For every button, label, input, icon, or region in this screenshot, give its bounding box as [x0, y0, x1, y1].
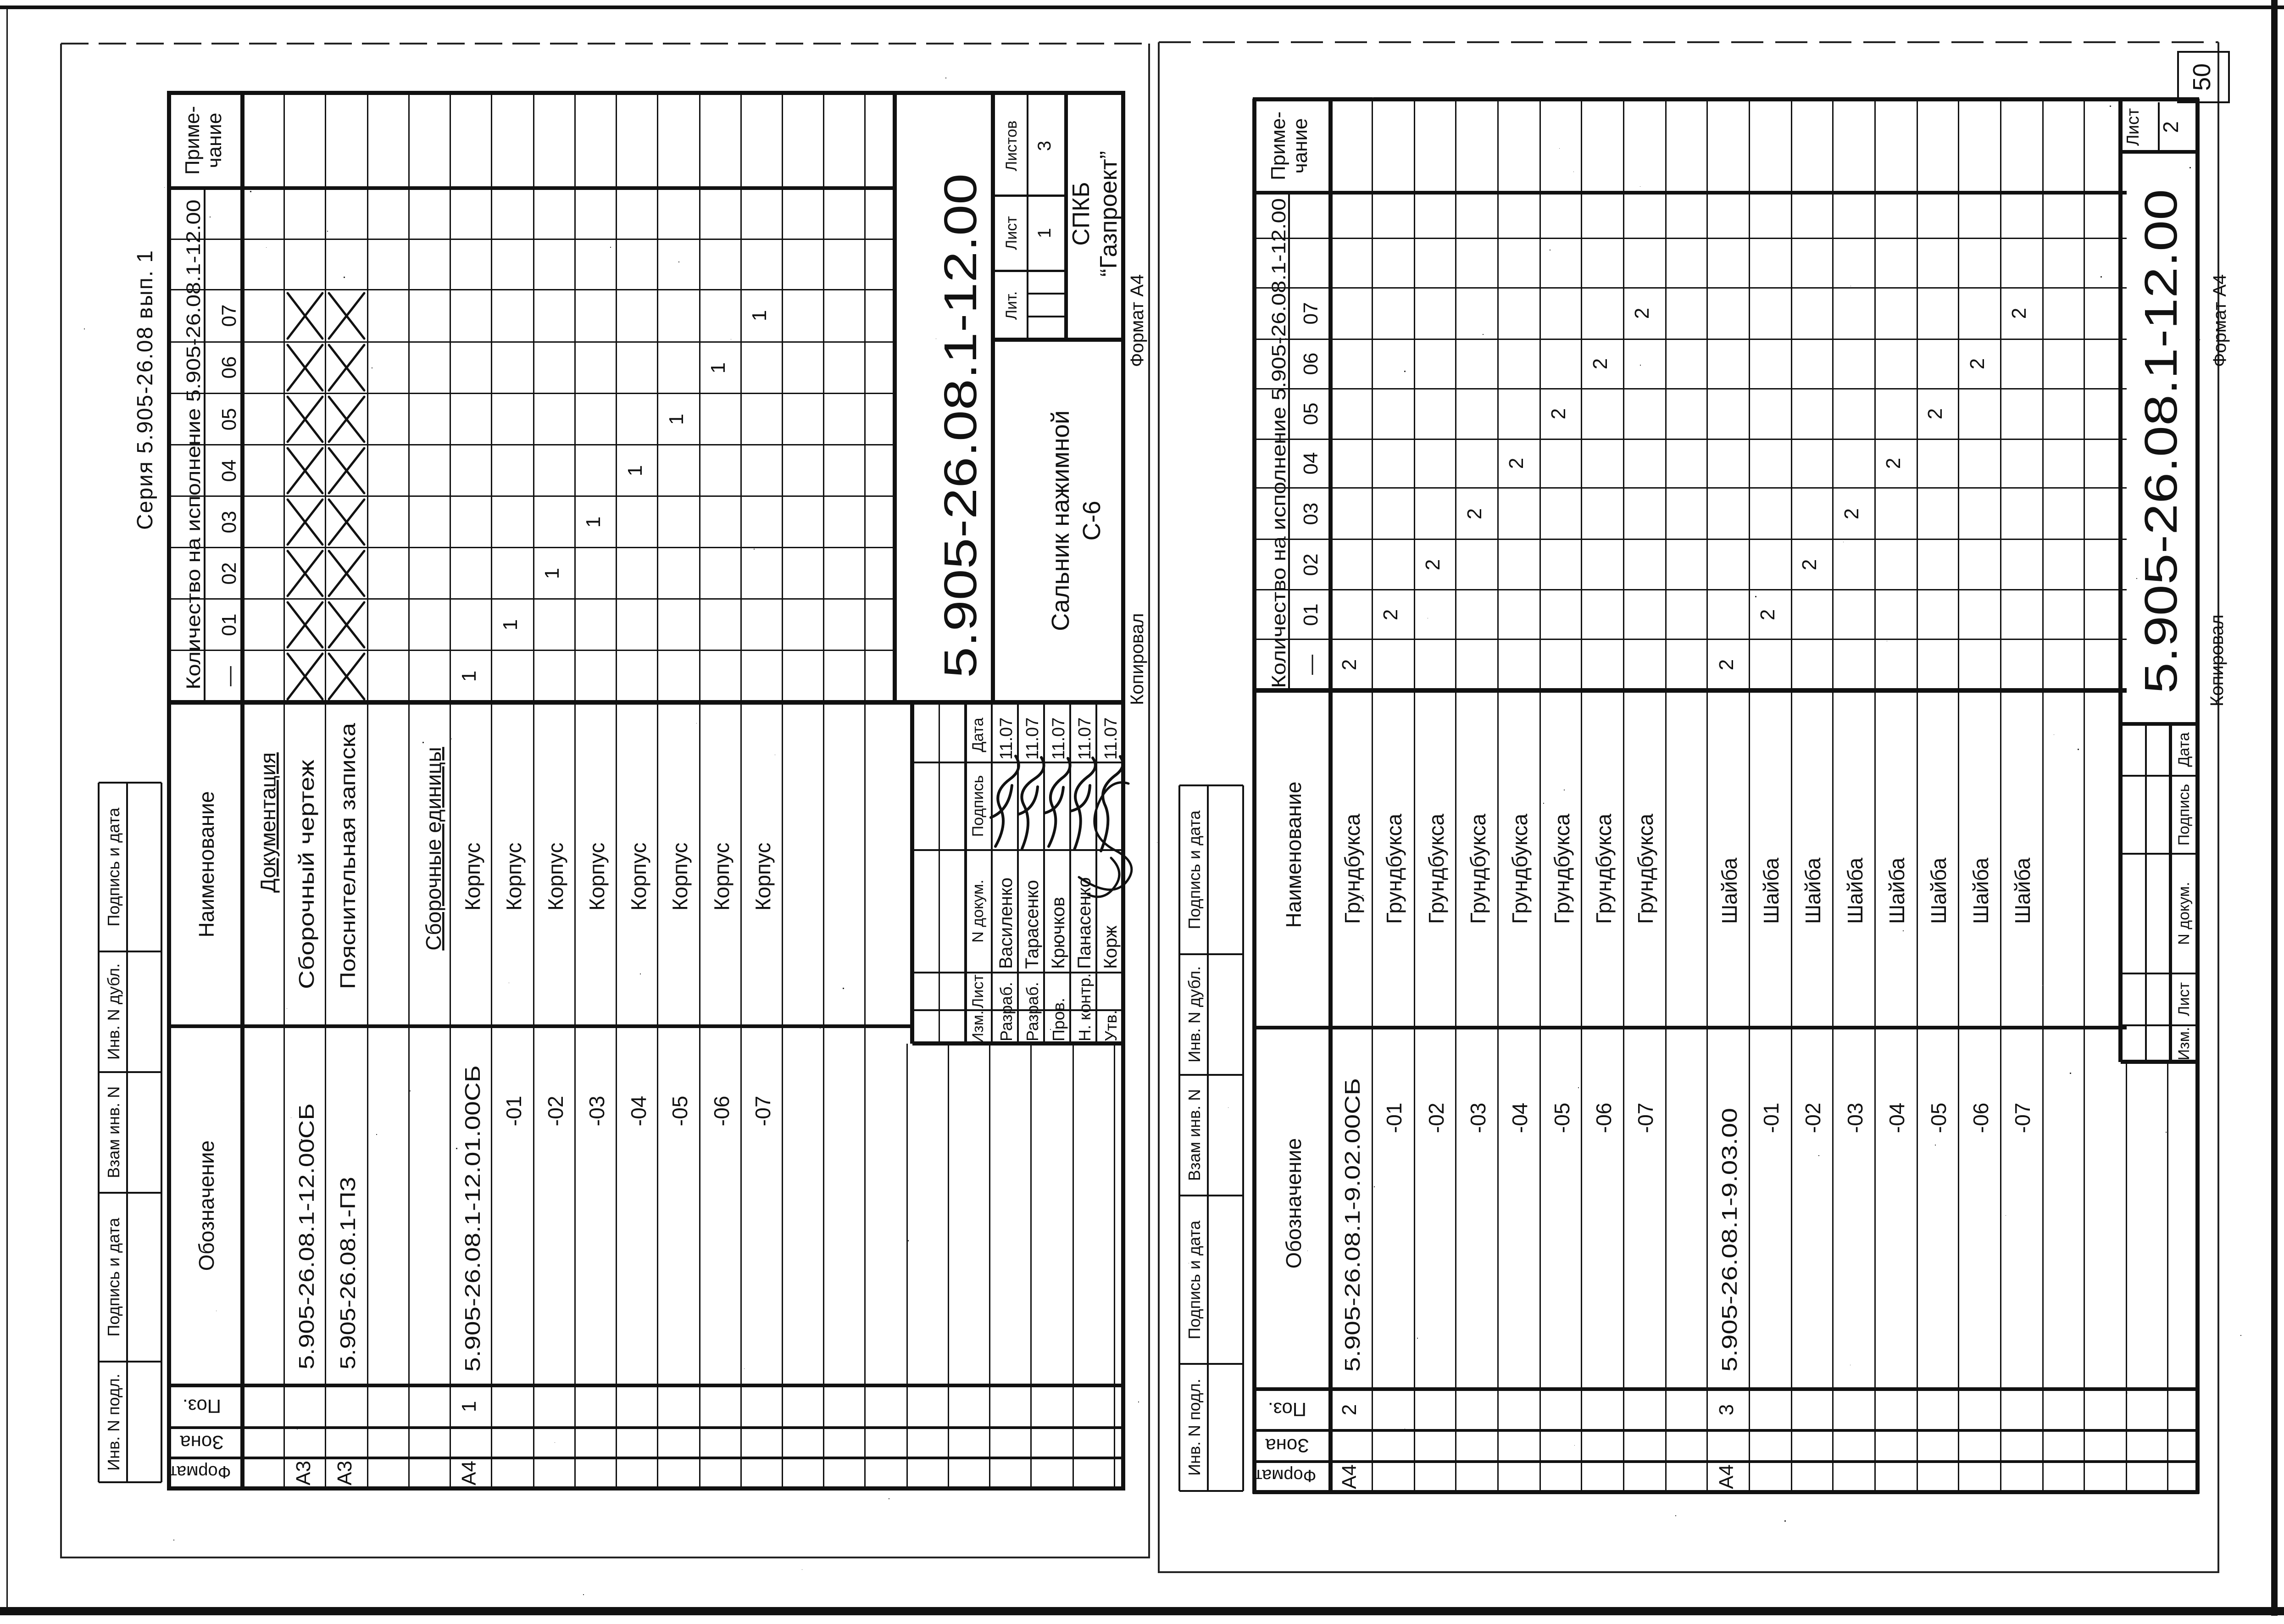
- svg-text:1: 1: [458, 671, 480, 682]
- svg-text:Количество на исполнение 5.905: Количество на исполнение 5.905-26.08.1-1…: [183, 200, 205, 690]
- svg-text:Корж: Корж: [1100, 925, 1121, 969]
- svg-text:-05: -05: [1550, 1103, 1574, 1133]
- svg-text:06: 06: [1300, 353, 1322, 375]
- svg-text:1: 1: [748, 310, 771, 321]
- svg-text:Лист: Лист: [2175, 982, 2193, 1016]
- svg-text:2: 2: [1756, 609, 1779, 620]
- svg-text:Грундбукса: Грундбукса: [1592, 813, 1616, 924]
- svg-text:Грундбукса: Грундбукса: [1508, 813, 1532, 924]
- svg-text:07: 07: [1300, 302, 1322, 325]
- svg-text:-04: -04: [1508, 1103, 1532, 1133]
- svg-text:2: 2: [1463, 508, 1486, 519]
- svg-text:-07: -07: [751, 1096, 775, 1126]
- svg-text:Формат А4: Формат А4: [2210, 274, 2230, 367]
- svg-text:Корпус: Корпус: [668, 843, 692, 911]
- svg-text:11.07: 11.07: [997, 717, 1016, 760]
- svg-text:04: 04: [218, 460, 240, 482]
- svg-text:-04: -04: [1885, 1103, 1909, 1133]
- svg-text:02: 02: [1300, 554, 1322, 576]
- svg-text:5.905-26.08.1-ПЗ: 5.905-26.08.1-ПЗ: [336, 1177, 360, 1369]
- svg-text:Серия 5.905-26.08 вып. 1: Серия 5.905-26.08 вып. 1: [133, 250, 157, 530]
- svg-text:1: 1: [499, 619, 522, 630]
- svg-text:5.905-26.08.1-12.00: 5.905-26.08.1-12.00: [935, 173, 986, 678]
- svg-text:Подпись: Подпись: [2175, 784, 2193, 846]
- svg-text:2: 2: [1379, 609, 1402, 620]
- svg-text:Пров.: Пров.: [1049, 998, 1068, 1041]
- svg-text:-01: -01: [1382, 1103, 1406, 1133]
- svg-text:5.905-26.08.1-12.00: 5.905-26.08.1-12.00: [2135, 189, 2187, 694]
- svg-text:11.07: 11.07: [1101, 717, 1121, 760]
- svg-text:1: 1: [582, 517, 605, 528]
- svg-text:Наименование: Наименование: [195, 791, 218, 938]
- svg-text:-05: -05: [1927, 1103, 1951, 1133]
- svg-text:Обозначение: Обозначение: [1282, 1138, 1306, 1269]
- svg-text:Тарасенко: Тарасенко: [1022, 880, 1042, 969]
- svg-text:Листов: Листов: [1003, 121, 1020, 171]
- svg-text:чание: чание: [203, 113, 226, 168]
- svg-text:Лист: Лист: [2123, 108, 2143, 146]
- svg-text:Поз.: Поз.: [1268, 1399, 1306, 1420]
- svg-text:04: 04: [1300, 452, 1322, 475]
- svg-text:2: 2: [1338, 1404, 1361, 1415]
- svg-text:Лист: Лист: [1003, 216, 1020, 250]
- svg-text:Шайба: Шайба: [1969, 857, 1993, 924]
- svg-text:—: —: [1300, 655, 1322, 675]
- svg-text:Грундбукса: Грундбукса: [1424, 813, 1448, 924]
- svg-text:Изм.: Изм.: [969, 1011, 987, 1044]
- svg-text:-03: -03: [1466, 1103, 1490, 1133]
- svg-text:Шайба: Шайба: [1927, 857, 1951, 924]
- svg-text:-06: -06: [1592, 1103, 1616, 1133]
- svg-text:—: —: [218, 666, 240, 686]
- svg-text:-05: -05: [668, 1096, 692, 1126]
- svg-text:Грундбукса: Грундбукса: [1634, 813, 1657, 924]
- svg-text:Взам инв. N: Взам инв. N: [1185, 1089, 1204, 1181]
- svg-text:Копировал: Копировал: [2207, 615, 2227, 706]
- svg-text:11.07: 11.07: [1075, 717, 1095, 760]
- svg-text:Пояснительная записка: Пояснительная записка: [336, 723, 360, 989]
- svg-text:Крючков: Крючков: [1048, 897, 1068, 969]
- svg-text:1: 1: [665, 414, 688, 425]
- svg-text:Корпус: Корпус: [751, 843, 775, 911]
- svg-text:Грундбукса: Грундбукса: [1382, 813, 1406, 924]
- svg-text:2: 2: [1840, 508, 1863, 519]
- svg-text:Утв.: Утв.: [1101, 1010, 1120, 1041]
- svg-text:2: 2: [1924, 408, 1946, 419]
- svg-text:2: 2: [1338, 659, 1361, 670]
- svg-text:2: 2: [1966, 358, 1989, 369]
- svg-text:01: 01: [218, 614, 240, 636]
- svg-text:Корпус: Корпус: [710, 843, 734, 911]
- svg-text:01: 01: [1300, 604, 1322, 626]
- svg-text:-07: -07: [2011, 1103, 2034, 1133]
- svg-text:Формат: Формат: [169, 1462, 231, 1481]
- svg-text:Василенко: Василенко: [996, 878, 1016, 969]
- svg-text:Обозначение: Обозначение: [195, 1140, 218, 1271]
- svg-text:11.07: 11.07: [1049, 717, 1068, 760]
- svg-text:-03: -03: [1843, 1103, 1867, 1133]
- svg-text:Разраб.: Разраб.: [1023, 982, 1042, 1041]
- svg-text:3: 3: [1715, 1404, 1738, 1415]
- svg-text:1: 1: [707, 362, 729, 373]
- svg-text:Н. контр.: Н. контр.: [1075, 973, 1094, 1041]
- svg-text:1: 1: [624, 465, 646, 476]
- svg-text:Шайба: Шайба: [1717, 857, 1741, 924]
- svg-text:Грундбукса: Грундбукса: [1550, 813, 1574, 924]
- svg-text:2: 2: [1547, 408, 1570, 419]
- svg-text:Формат: Формат: [1255, 1466, 1317, 1485]
- svg-text:5.905-26.08.1-9.02.00СБ: 5.905-26.08.1-9.02.00СБ: [1340, 1078, 1364, 1372]
- svg-text:Изм.: Изм.: [2175, 1027, 2193, 1061]
- svg-text:Шайба: Шайба: [2011, 857, 2034, 924]
- svg-text:С-6: С-6: [1078, 501, 1106, 540]
- svg-text:03: 03: [218, 511, 240, 534]
- svg-text:-02: -02: [1424, 1103, 1448, 1133]
- svg-text:2: 2: [1798, 559, 1821, 570]
- svg-text:Количество на исполнение 5.905: Количество на исполнение 5.905-26.08.1-1…: [1268, 198, 1290, 688]
- svg-text:-06: -06: [710, 1096, 734, 1126]
- svg-text:Подпись и дата: Подпись и дата: [1185, 810, 1204, 929]
- svg-text:1: 1: [1034, 228, 1055, 238]
- svg-text:2: 2: [2008, 308, 2030, 319]
- svg-text:Грундбукса: Грундбукса: [1466, 813, 1490, 924]
- svg-text:Грундбукса: Грундбукса: [1340, 813, 1364, 924]
- svg-text:Дата: Дата: [2175, 732, 2193, 767]
- svg-text:“Газпроект”: “Газпроект”: [1095, 151, 1122, 277]
- svg-text:А4: А4: [1715, 1464, 1738, 1489]
- svg-text:Лит.: Лит.: [1003, 291, 1020, 320]
- svg-text:А3: А3: [333, 1461, 356, 1485]
- svg-text:Зона: Зона: [1265, 1435, 1309, 1457]
- svg-text:5.905-26.08.1-12.00СБ: 5.905-26.08.1-12.00СБ: [295, 1103, 318, 1369]
- svg-text:Документация: Документация: [256, 752, 280, 893]
- svg-text:-07: -07: [1634, 1103, 1657, 1133]
- svg-text:07: 07: [218, 305, 240, 327]
- svg-text:Корпус: Корпус: [461, 843, 484, 911]
- svg-text:5.905-26.08.1-9.03.00: 5.905-26.08.1-9.03.00: [1717, 1108, 1741, 1372]
- svg-text:-02: -02: [1801, 1103, 1825, 1133]
- svg-text:2: 2: [1505, 458, 1528, 469]
- svg-text:-01: -01: [502, 1096, 526, 1126]
- svg-text:чание: чание: [1289, 118, 1311, 174]
- svg-text:Взам инв. N: Взам инв. N: [104, 1086, 123, 1178]
- svg-text:05: 05: [1300, 403, 1322, 425]
- svg-text:СПКБ: СПКБ: [1068, 182, 1095, 245]
- svg-text:05: 05: [218, 408, 240, 431]
- svg-text:02: 02: [218, 562, 240, 585]
- svg-text:Панасенко: Панасенко: [1074, 877, 1095, 969]
- svg-text:2: 2: [2159, 121, 2183, 133]
- svg-text:Формат А4: Формат А4: [1127, 274, 1147, 367]
- svg-text:2: 2: [1882, 458, 1905, 469]
- svg-text:Дата: Дата: [969, 717, 987, 752]
- svg-text:50: 50: [2188, 63, 2216, 91]
- svg-text:Лист: Лист: [969, 974, 987, 1008]
- svg-text:-02: -02: [544, 1096, 567, 1126]
- svg-text:А4: А4: [458, 1461, 480, 1485]
- svg-text:N докум.: N докум.: [969, 879, 987, 942]
- svg-text:-03: -03: [585, 1096, 609, 1126]
- svg-text:Наименование: Наименование: [1282, 782, 1306, 928]
- svg-text:5.905-26.08.1-12.01.00СБ: 5.905-26.08.1-12.01.00СБ: [461, 1065, 484, 1372]
- svg-text:Подпись и дата: Подпись и дата: [104, 807, 123, 927]
- svg-text:Корпус: Корпус: [627, 843, 650, 911]
- svg-text:Шайба: Шайба: [1885, 857, 1909, 924]
- svg-text:-04: -04: [627, 1096, 650, 1126]
- svg-text:2: 2: [1715, 659, 1738, 670]
- svg-text:Приме-: Приме-: [1267, 111, 1289, 180]
- svg-text:3: 3: [1034, 141, 1055, 151]
- svg-text:Подпись: Подпись: [969, 775, 987, 837]
- svg-text:Сальник нажимной: Сальник нажимной: [1047, 410, 1074, 631]
- svg-text:Шайба: Шайба: [1801, 857, 1825, 924]
- svg-text:Шайба: Шайба: [1759, 857, 1783, 924]
- svg-text:Разраб.: Разраб.: [997, 982, 1016, 1041]
- svg-text:Корпус: Корпус: [544, 843, 567, 911]
- svg-text:1: 1: [458, 1401, 480, 1412]
- svg-text:Подпись и дата: Подпись и дата: [1185, 1220, 1204, 1340]
- svg-text:Корпус: Корпус: [585, 843, 609, 911]
- svg-text:03: 03: [1300, 503, 1322, 525]
- svg-text:06: 06: [218, 356, 240, 379]
- svg-text:Зона: Зона: [180, 1432, 224, 1453]
- svg-text:Приме-: Приме-: [181, 106, 204, 175]
- svg-text:А4: А4: [1338, 1464, 1361, 1489]
- svg-text:Инв. N подл.: Инв. N подл.: [1185, 1379, 1204, 1476]
- svg-text:Сборочный чертеж: Сборочный чертеж: [295, 760, 318, 989]
- svg-text:Инв. N дубл.: Инв. N дубл.: [104, 963, 123, 1060]
- svg-text:Подпись и дата: Подпись и дата: [104, 1218, 123, 1337]
- svg-text:Инв. N подл.: Инв. N подл.: [104, 1374, 123, 1471]
- svg-text:А3: А3: [292, 1461, 315, 1485]
- svg-text:Шайба: Шайба: [1843, 857, 1867, 924]
- svg-text:2: 2: [1589, 358, 1612, 369]
- svg-text:Сборочные единицы: Сборочные единицы: [422, 747, 445, 951]
- svg-text:Корпус: Корпус: [502, 843, 526, 911]
- svg-text:-01: -01: [1759, 1103, 1783, 1133]
- svg-text:2: 2: [1422, 559, 1444, 570]
- svg-text:-06: -06: [1969, 1103, 1993, 1133]
- svg-text:2: 2: [1631, 308, 1653, 319]
- svg-text:Копировал: Копировал: [1127, 613, 1147, 705]
- svg-text:1: 1: [541, 568, 563, 579]
- svg-text:11.07: 11.07: [1023, 717, 1042, 760]
- svg-text:Поз.: Поз.: [183, 1396, 221, 1417]
- svg-text:N докум.: N докум.: [2175, 882, 2193, 945]
- svg-text:Инв. N дубл.: Инв. N дубл.: [1185, 966, 1204, 1062]
